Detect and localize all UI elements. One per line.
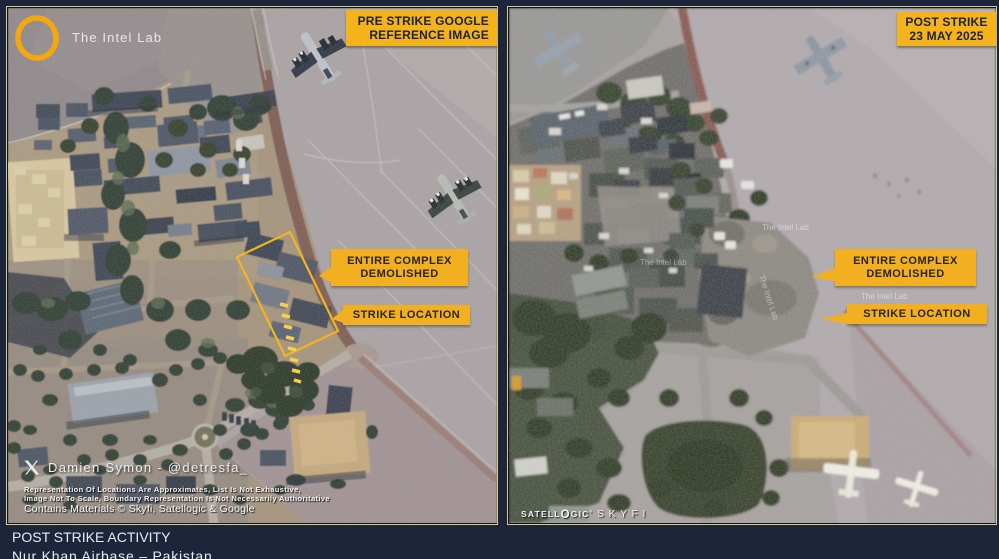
svg-text:The Intel Lab: The Intel Lab	[640, 258, 687, 267]
svg-text:The Intel Lab: The Intel Lab	[762, 223, 809, 232]
svg-text:The Intel Lab: The Intel Lab	[861, 292, 908, 301]
